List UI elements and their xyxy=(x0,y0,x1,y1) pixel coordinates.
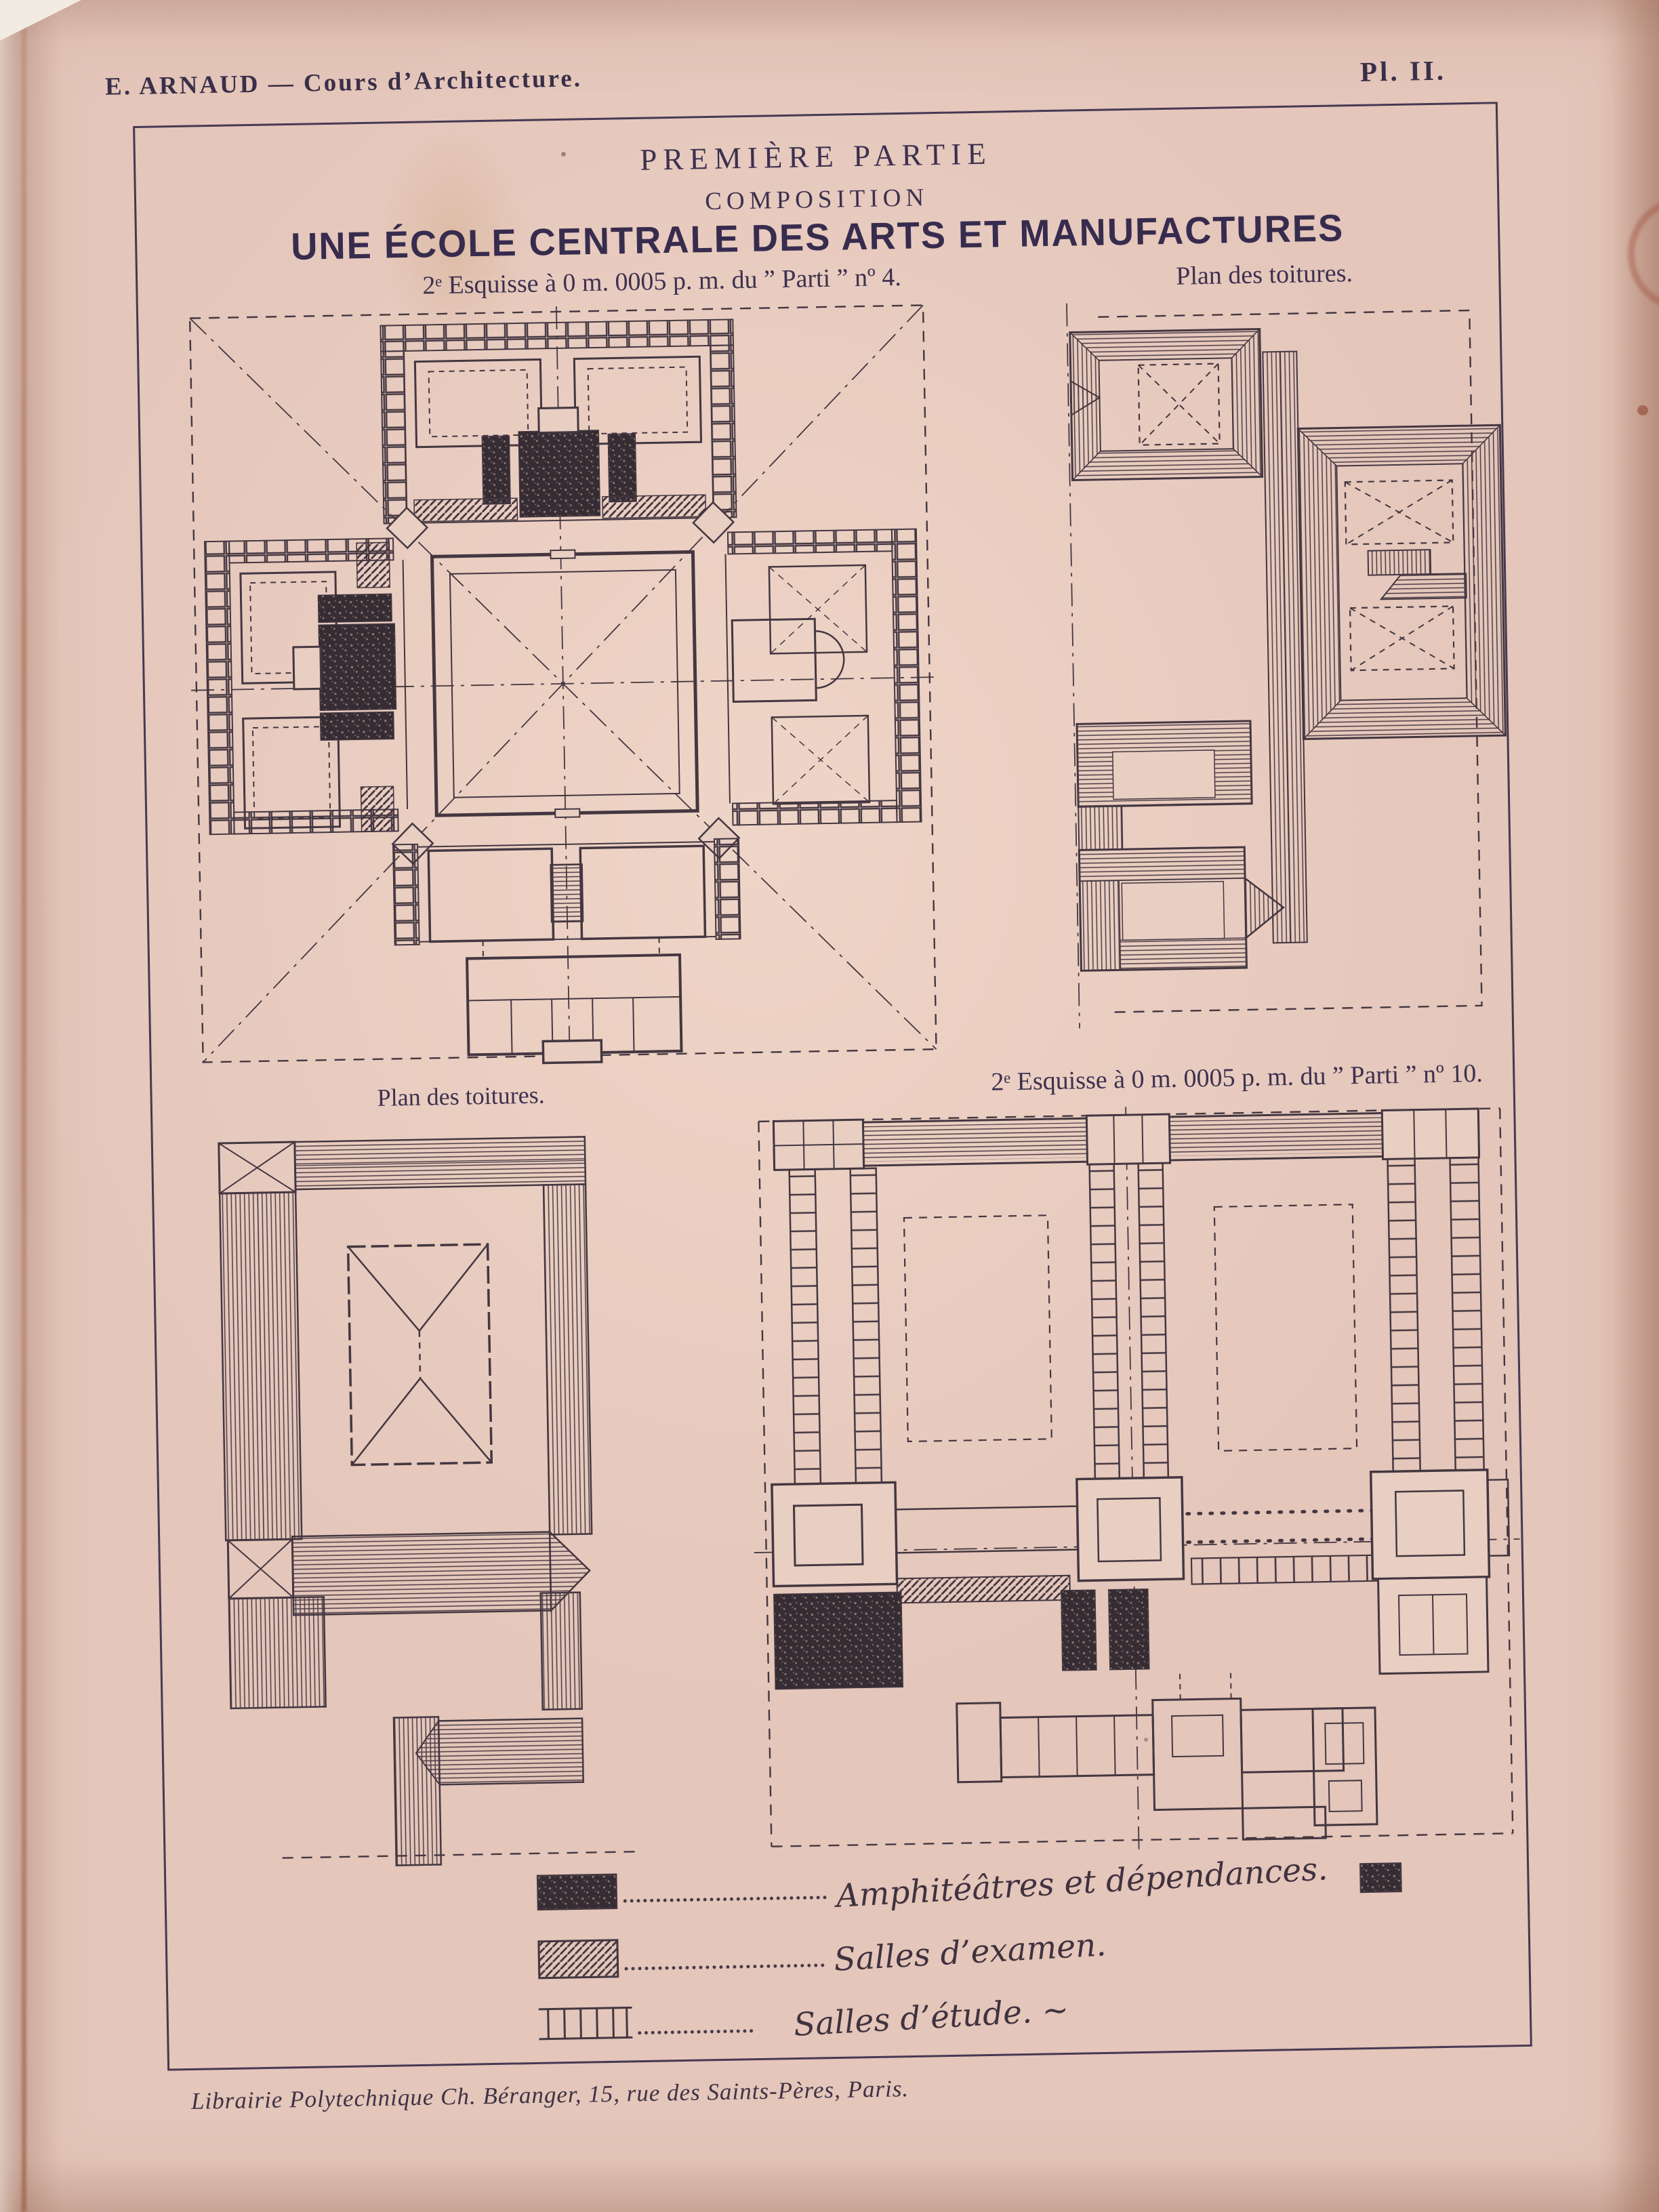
roof-plan-top-drawing xyxy=(1057,285,1517,1039)
author-course-title: E. ARNAUD — Cours d’Architecture. xyxy=(105,64,583,102)
legend-row-amphitheatres: Amphitéâtres et dépendances. xyxy=(536,1858,1403,1911)
caption-floor-plan-parti-4: 2ᵉ Esquisse à 0 m. 0005 p. m. du ” Parti… xyxy=(422,262,901,301)
legend-row-study-rooms: Salles d’étude. ~ xyxy=(539,1996,1069,2043)
caption-roof-plan-bottom: Plan des toitures. xyxy=(377,1080,545,1111)
caption-roof-plan-top: Plan des toitures. xyxy=(1176,258,1353,291)
floor-plan-parti-10-drawing xyxy=(746,1100,1525,1862)
roof-plan-bottom-drawing xyxy=(202,1125,645,1871)
legend-swatch-exam-rooms xyxy=(537,1939,619,1980)
floor-plan-parti-4-drawing xyxy=(180,295,946,1071)
running-head: E. ARNAUD — Cours d’Architecture. Pl. II… xyxy=(0,45,1640,75)
plate-content: E. ARNAUD — Cours d’Architecture. Pl. II… xyxy=(0,0,1659,2212)
publisher-imprint: Librairie Polytechnique Ch. Béranger, 15… xyxy=(191,2075,909,2115)
legend-row-exam-rooms: Salles d’examen. xyxy=(537,1930,1107,1980)
scanned-plate-page: E. ARNAUD — Cours d’Architecture. Pl. II… xyxy=(0,0,1659,2212)
legend-leader-dots xyxy=(624,1943,825,1970)
legend-swatch-study-rooms xyxy=(539,2003,633,2043)
legend-leader-dots xyxy=(638,2009,754,2034)
legend-label-exam-rooms: Salles d’examen. xyxy=(833,1926,1107,1979)
legend-label-study-rooms: Salles d’étude. ~ xyxy=(793,1991,1070,2044)
plate-number: Pl. II. xyxy=(1360,54,1447,88)
legend-leader-dots xyxy=(623,1875,827,1902)
legend-swatch-amphitheatres-small xyxy=(1359,1862,1403,1893)
legend-swatch-amphitheatres xyxy=(536,1872,618,1910)
legend-label-amphitheatres: Amphitéâtres et dépendances. xyxy=(835,1850,1328,1915)
caption-floor-plan-parti-10: 2ᵉ Esquisse à 0 m. 0005 p. m. du ” Parti… xyxy=(991,1059,1483,1097)
plate-frame: PREMIÈRE PARTIE COMPOSITION UNE ÉCOLE CE… xyxy=(133,102,1532,2070)
